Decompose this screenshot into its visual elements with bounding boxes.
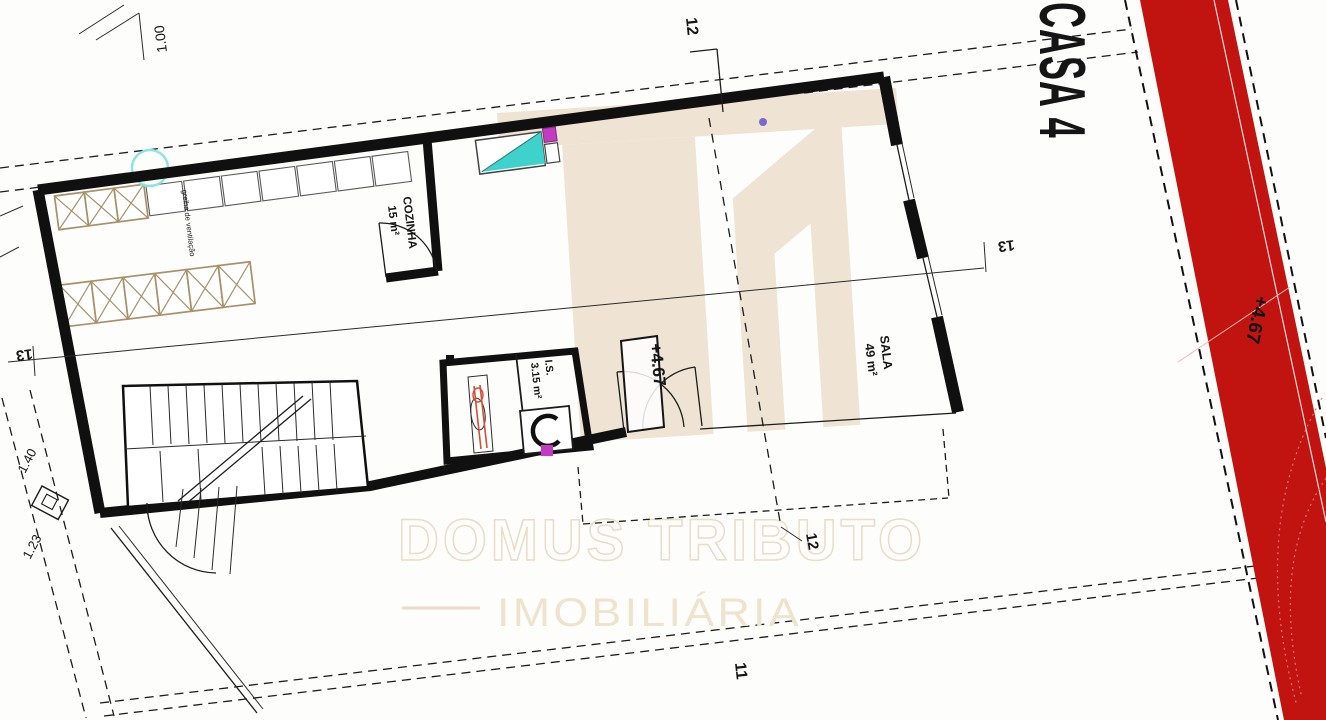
window-marker-magenta <box>542 127 557 143</box>
watermark-text: DOMUS TRIBUTO IMOBILIÁRIA <box>398 508 926 635</box>
floor-plan-canvas: DOMUS TRIBUTO IMOBILIÁRIA <box>0 0 1326 720</box>
bathroom-name: I.S. <box>542 359 556 376</box>
survey-marker <box>32 486 69 520</box>
staircase <box>123 381 368 574</box>
bathroom-magenta-marker <box>541 445 553 456</box>
wall-kitchen-partition <box>427 139 438 271</box>
logo-u-shape <box>728 107 861 431</box>
boundary-tick-2 <box>0 247 19 257</box>
wall-right-seg3 <box>937 317 958 412</box>
towel-rail-1 <box>474 386 481 449</box>
dimension-top-left: 1.00 <box>151 24 170 53</box>
section-mark-12-top: 12 <box>682 17 701 37</box>
corner-leader-line <box>79 5 124 34</box>
wall-top <box>38 77 884 190</box>
bathroom-area: 3.15 m² <box>528 362 544 400</box>
left-lower-wall-2 <box>119 526 263 709</box>
wall-right-seg2 <box>909 200 923 258</box>
casa-title: CASA 4 <box>1025 2 1097 139</box>
kitchen-name: COZINHA <box>400 196 418 249</box>
living-name: SALA <box>877 335 895 370</box>
entry-door-arc <box>147 503 216 573</box>
living-area: 49 m² <box>862 343 880 377</box>
wall-right-seg1 <box>884 77 897 145</box>
boundary-tick-1 <box>0 206 23 216</box>
watermark-logo <box>497 88 917 446</box>
section-mark-13-right: 13 <box>997 236 1016 255</box>
section-mark-11: 11 <box>731 662 750 681</box>
dimension-left-upper: 1.40 <box>14 446 39 475</box>
wall-left <box>38 190 100 513</box>
window-1 <box>902 143 914 198</box>
kitchen-door-leaf <box>379 223 386 277</box>
duct-marker <box>446 355 454 363</box>
watermark-brand: DOMUS TRIBUTO <box>398 508 926 573</box>
left-lower-wall-1 <box>111 528 257 713</box>
kitchen-counter-island <box>59 262 255 327</box>
section-mark-12-bottom: 12 <box>802 532 822 551</box>
watermark-subtitle: IMOBILIÁRIA <box>497 590 802 635</box>
kitchen-area: 15 m² <box>385 205 401 236</box>
bathroom <box>443 351 590 461</box>
wall-kitchen-partition-2 <box>386 271 438 278</box>
light-point <box>759 118 767 126</box>
red-boundary-band: +4.67 <box>1125 0 1326 720</box>
floor-plan-drawing: DOMUS TRIBUTO IMOBILIÁRIA <box>0 0 1326 720</box>
section-mark-13-left: 13 <box>15 345 34 364</box>
red-band-fill <box>1140 0 1326 720</box>
